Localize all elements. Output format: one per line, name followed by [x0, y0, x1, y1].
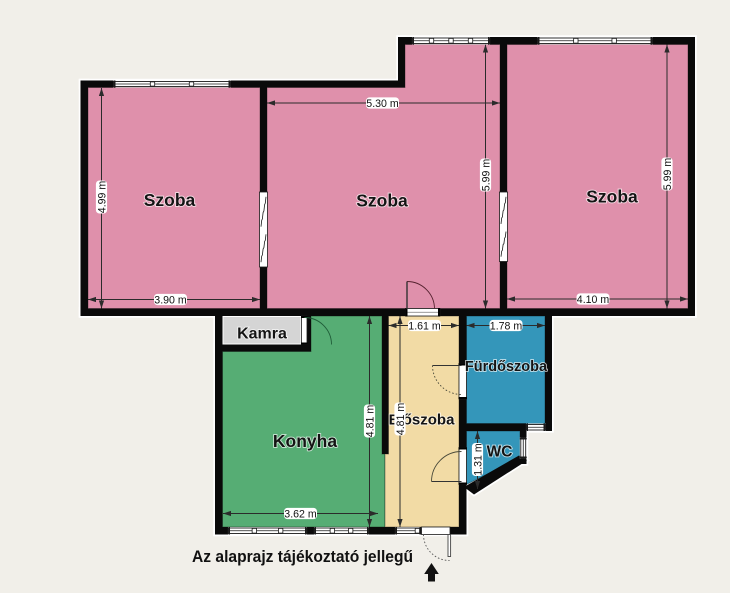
svg-text:4.81 m: 4.81 m [364, 405, 376, 438]
svg-text:1.61 m: 1.61 m [408, 320, 441, 332]
svg-text:Fürdőszoba: Fürdőszoba [465, 359, 548, 375]
svg-text:4.99 m: 4.99 m [96, 181, 108, 214]
svg-text:5.99 m: 5.99 m [480, 159, 492, 192]
svg-text:Kamra: Kamra [237, 326, 287, 343]
svg-text:4.10 m: 4.10 m [577, 294, 610, 306]
svg-text:3.62 m: 3.62 m [284, 508, 317, 520]
svg-text:5.99 m: 5.99 m [662, 158, 674, 191]
svg-text:Az alaprajz tájékoztató jelleg: Az alaprajz tájékoztató jellegű [192, 548, 413, 566]
svg-text:Szoba: Szoba [144, 190, 196, 210]
svg-text:Konyha: Konyha [273, 431, 337, 451]
svg-text:1.78 m: 1.78 m [490, 320, 523, 332]
svg-text:3.90 m: 3.90 m [154, 294, 187, 306]
svg-text:Szoba: Szoba [356, 191, 408, 211]
svg-text:WC: WC [487, 444, 513, 461]
svg-text:1.31 m: 1.31 m [472, 443, 484, 476]
svg-text:4.81 m: 4.81 m [395, 403, 407, 436]
svg-text:5.30 m: 5.30 m [366, 98, 399, 110]
svg-text:Szoba: Szoba [586, 187, 638, 207]
